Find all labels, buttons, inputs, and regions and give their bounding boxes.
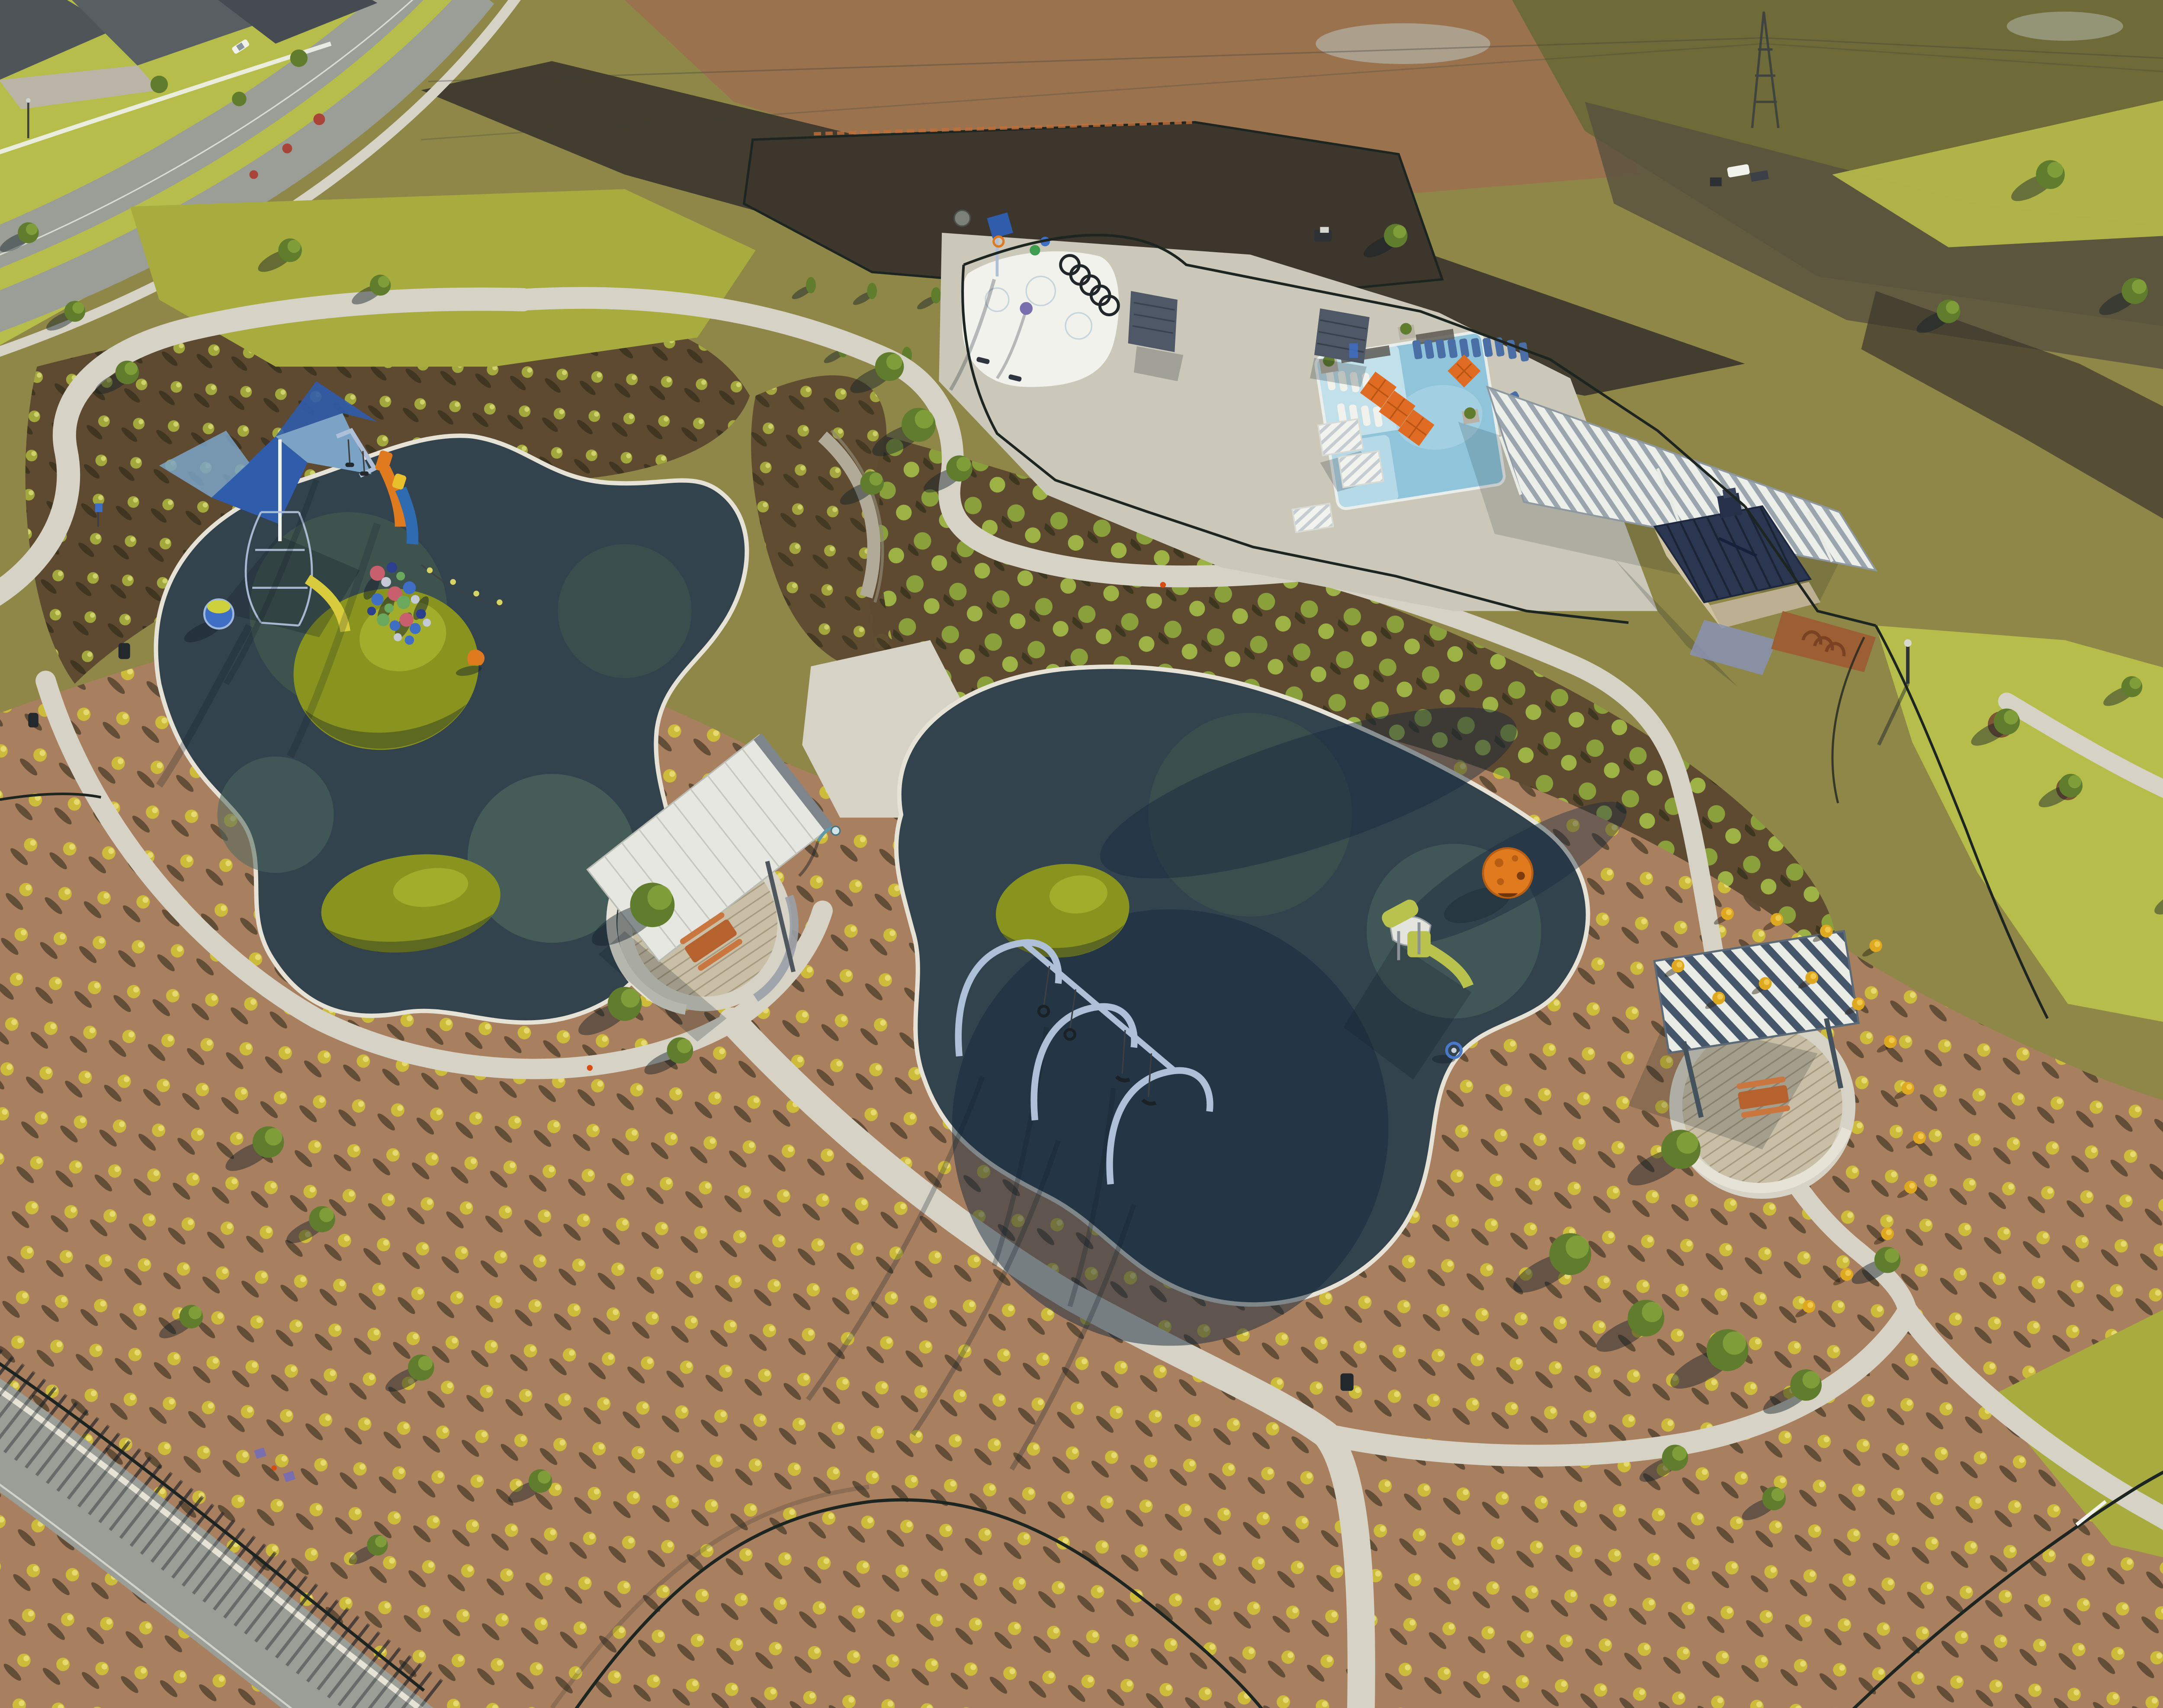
pool-rules-sign	[1349, 344, 1358, 358]
wet-spot	[1316, 23, 1490, 64]
trash-can-west-2	[28, 713, 39, 728]
pool-equipment-building	[1310, 308, 1370, 387]
aerial-park-photo	[0, 0, 2163, 1708]
splash-pad	[962, 251, 1119, 387]
wet-spot-2	[2007, 12, 2123, 41]
manhole	[954, 210, 970, 226]
spinner-green	[1030, 245, 1040, 255]
trash-can	[1341, 1374, 1354, 1391]
trash-can-west	[119, 643, 130, 659]
cone	[587, 1065, 593, 1071]
shaded-surface	[952, 909, 1389, 1346]
equipment-enclosure	[1128, 291, 1184, 381]
flag-marker	[272, 1465, 277, 1470]
cone-2	[1160, 582, 1166, 588]
